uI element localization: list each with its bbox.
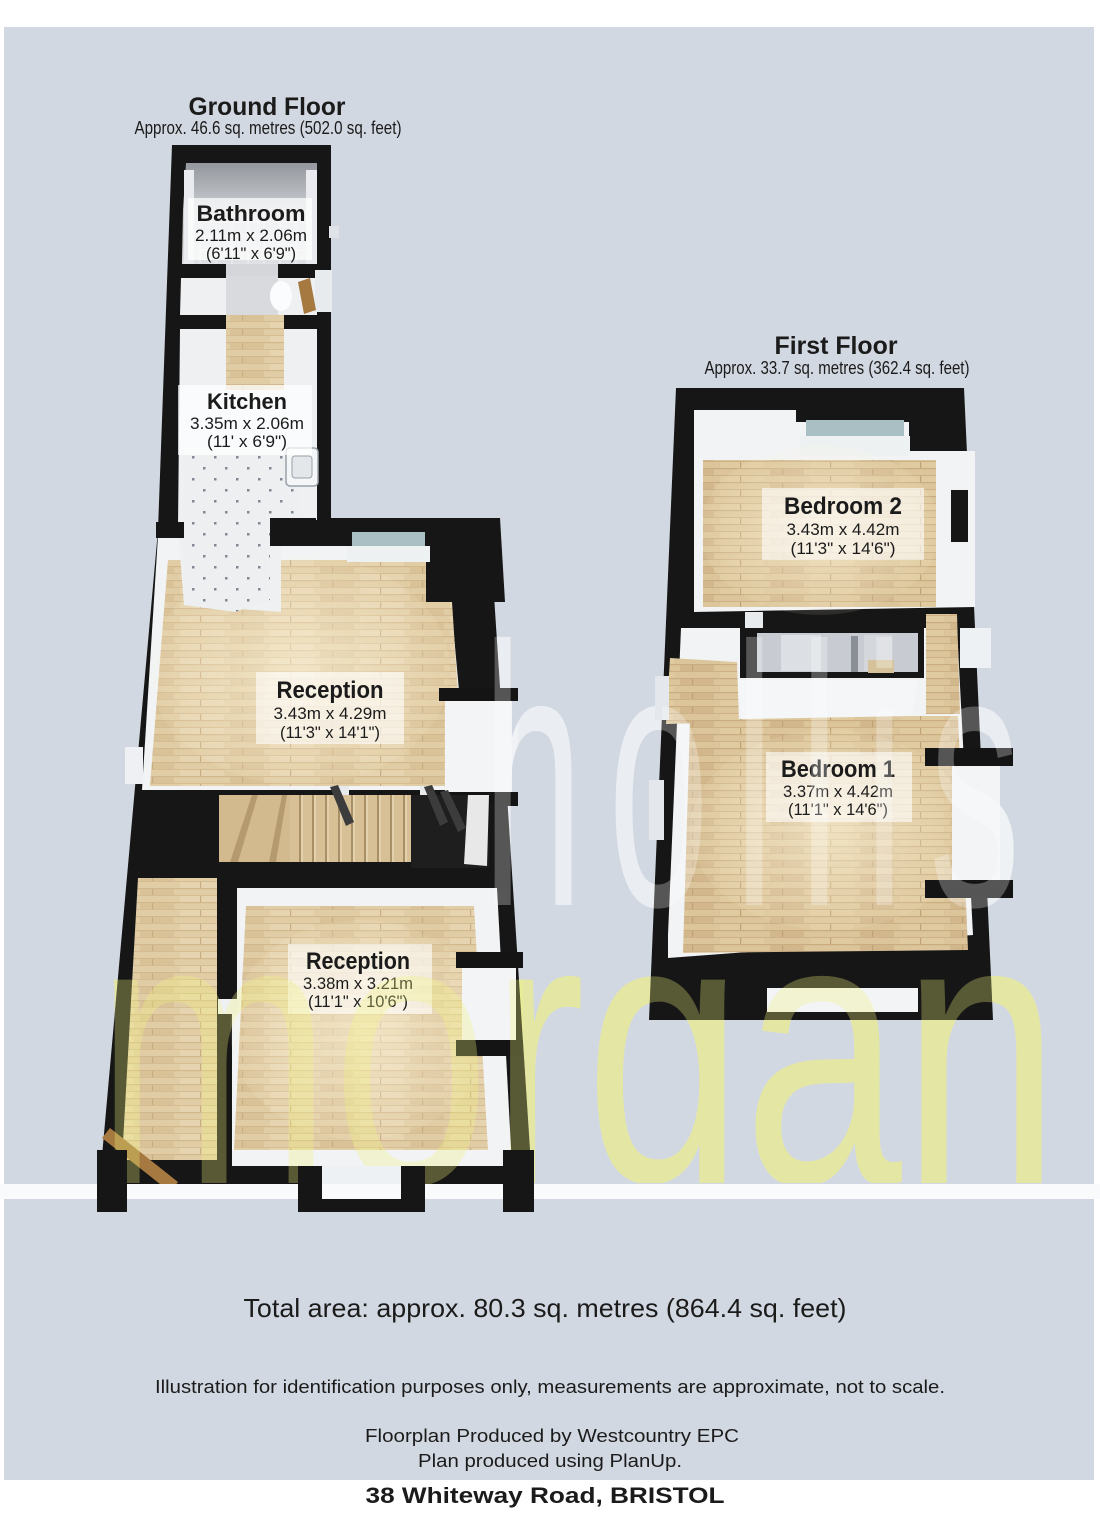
- svg-text:3.43m x 4.29m: 3.43m x 4.29m: [274, 704, 387, 723]
- svg-text:38 Whiteway Road, BRISTOL: 38 Whiteway Road, BRISTOL: [366, 1483, 725, 1508]
- svg-text:First Floor: First Floor: [775, 332, 898, 360]
- svg-text:(6'11" x 6'9"): (6'11" x 6'9"): [206, 244, 296, 263]
- svg-text:(11'3" x 14'1"): (11'3" x 14'1"): [280, 723, 380, 742]
- svg-text:Ground Floor: Ground Floor: [189, 93, 346, 121]
- svg-text:3.35m x 2.06m: 3.35m x 2.06m: [190, 414, 304, 433]
- svg-text:Kitchen: Kitchen: [207, 389, 287, 414]
- svg-text:2.11m x 2.06m: 2.11m x 2.06m: [195, 226, 307, 245]
- svg-text:Bathroom: Bathroom: [197, 201, 306, 226]
- svg-text:Total area: approx. 80.3 sq.: Total area: approx. 80.3 sq. metres (864…: [244, 1293, 847, 1323]
- svg-text:(11' x 6'9"): (11' x 6'9"): [207, 432, 287, 451]
- svg-text:Bedroom 2: Bedroom 2: [784, 493, 902, 520]
- svg-text:(11'3" x 14'6"): (11'3" x 14'6"): [791, 539, 896, 558]
- svg-text:3.43m x 4.42m: 3.43m x 4.42m: [787, 520, 900, 539]
- svg-text:Approx. 33.7 sq. metres (362.: Approx. 33.7 sq. metres (362.4 sq. feet): [705, 358, 970, 378]
- svg-text:Illustration for identificatio: Illustration for identification purposes…: [155, 1377, 945, 1397]
- svg-text:Reception: Reception: [277, 677, 384, 704]
- svg-text:Approx. 46.6 sq. metres (502.: Approx. 46.6 sq. metres (502.0 sq. feet): [135, 118, 402, 138]
- svg-text:Floorplan Produced by Westcoun: Floorplan Produced by Westcountry EPC: [365, 1426, 739, 1446]
- svg-text:Plan produced using PlanUp.: Plan produced using PlanUp.: [418, 1451, 682, 1471]
